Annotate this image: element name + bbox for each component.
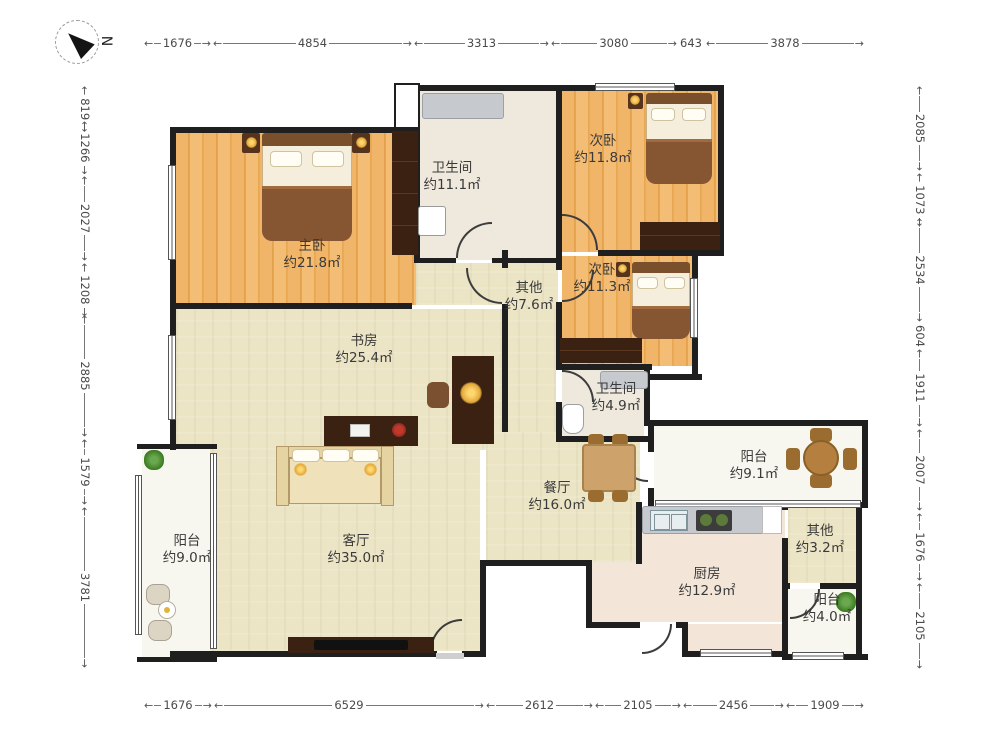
bed-blanket (646, 139, 712, 184)
pillow (312, 151, 344, 167)
sofa-pillow (294, 463, 307, 476)
room-label-balcony-bottom: 阳台约4.0㎡ (803, 592, 851, 626)
dim-top-3: ←3313→ (413, 35, 550, 51)
bed-blanket (632, 306, 690, 339)
balcony-table (158, 601, 176, 619)
bed-headboard (262, 133, 352, 146)
pillow (651, 108, 675, 121)
balcony-chair (810, 474, 832, 488)
sofa-cushion (292, 449, 320, 462)
dim-left-3: ←2027→ (77, 175, 93, 262)
pillow (664, 277, 685, 289)
tv (314, 640, 408, 650)
toilet (562, 404, 584, 434)
room-label-bathroom-2: 卫生间约4.9㎡ (592, 381, 640, 415)
compass-circle-icon (55, 20, 99, 64)
room-label-bedroom-3: 次卧约11.3㎡ (573, 262, 630, 296)
dining-chair (588, 490, 604, 502)
sofa-cushion (322, 449, 350, 462)
bed-headboard (646, 93, 712, 104)
balcony-chair (786, 448, 800, 470)
wardrobe (640, 222, 720, 250)
room-label-bathroom-1: 卫生间约11.1㎡ (423, 160, 480, 194)
dim-right-1: ←2085→ (912, 85, 928, 172)
balcony-chair (148, 620, 172, 641)
fridge (762, 506, 782, 534)
dim-top-5: 643 (678, 35, 705, 51)
desk-chair (427, 382, 449, 408)
dim-left-5: ←2885→ (77, 314, 93, 438)
flower (392, 423, 406, 437)
dim-left-7: ←3781→ (77, 506, 93, 669)
dim-left-1: ←819→ (77, 85, 93, 120)
bathtub (422, 93, 504, 119)
pillow (637, 277, 658, 289)
dim-left-2: ←1266→ (77, 120, 93, 175)
room-label-dining: 餐厅约16.0㎡ (528, 480, 585, 514)
bed-headboard (632, 262, 690, 273)
stove (696, 510, 732, 531)
desk-lamp (460, 382, 482, 404)
floor-plan: N (0, 0, 1000, 750)
window (595, 83, 675, 91)
dim-bottom-3: ←2612→ (485, 697, 594, 713)
room-label-other-2: 其他约3.2㎡ (796, 523, 844, 557)
sofa-arm (381, 446, 394, 506)
sofa-cushion (352, 449, 379, 462)
dim-bottom-4: ←2105→ (594, 697, 682, 713)
dim-right-7: ←1676→ (912, 512, 928, 582)
north-arrow-icon (61, 26, 94, 59)
washer (418, 206, 446, 236)
door-arc (642, 624, 672, 654)
dim-right-2: ←1073→ (912, 172, 928, 217)
dim-right-4: 604 (912, 323, 928, 348)
balcony-table (803, 440, 839, 476)
dining-table (582, 444, 636, 492)
balcony-chair (843, 448, 857, 470)
lamp (246, 137, 257, 148)
dim-left-6: ←1579→ (77, 438, 93, 506)
book (350, 424, 370, 437)
dim-bottom-2: ←6529→ (213, 697, 485, 713)
window (168, 165, 176, 260)
room-label-balcony-left: 阳台约9.0㎡ (163, 533, 211, 567)
dim-bottom-5: ←2456→ (682, 697, 785, 713)
pillow (270, 151, 302, 167)
window (690, 278, 698, 338)
dim-bottom-6: ←1909→ (785, 697, 865, 713)
room-label-study: 书房约25.4㎡ (335, 333, 392, 367)
room-label-other-1: 其他约7.6㎡ (505, 280, 553, 314)
dim-top-2: ←4854→ (212, 35, 413, 51)
bed-blanket (262, 186, 352, 241)
dim-top-4: ←3080→ (550, 35, 678, 51)
lamp (630, 95, 640, 105)
room-label-bedroom-2: 次卧约11.8㎡ (574, 133, 631, 167)
compass-north: N (55, 20, 125, 68)
dim-left-4: ←1208→ (77, 262, 93, 314)
dim-top-6: ←3878→ (705, 35, 865, 51)
sofa-pillow (364, 463, 377, 476)
north-label: N (98, 36, 114, 46)
room-label-master-bedroom: 主卧约21.8㎡ (283, 238, 340, 272)
pillow (682, 108, 706, 121)
room-label-balcony-right: 阳台约9.1㎡ (730, 449, 778, 483)
window (135, 475, 142, 635)
dining-chair (612, 490, 628, 502)
dim-bottom-1: ←1676→ (143, 697, 213, 713)
wardrobe (560, 338, 642, 363)
room-label-living: 客厅约35.0㎡ (327, 533, 384, 567)
wardrobe (392, 131, 418, 255)
room-label-kitchen: 厨房约12.9㎡ (678, 566, 735, 600)
dim-right-8: ←2105→ (912, 582, 928, 670)
window (168, 335, 176, 420)
dim-top-1: ←1676→ (143, 35, 212, 51)
dim-right-5: ←1911→ (912, 348, 928, 428)
dim-right-6: ←2007→ (912, 428, 928, 512)
window (700, 649, 772, 657)
sofa-arm (276, 446, 289, 506)
dim-right-3: ←2534→ (912, 217, 928, 323)
plant (144, 450, 164, 470)
window (792, 652, 844, 660)
lamp (356, 137, 367, 148)
kitchen-sink (650, 510, 688, 531)
